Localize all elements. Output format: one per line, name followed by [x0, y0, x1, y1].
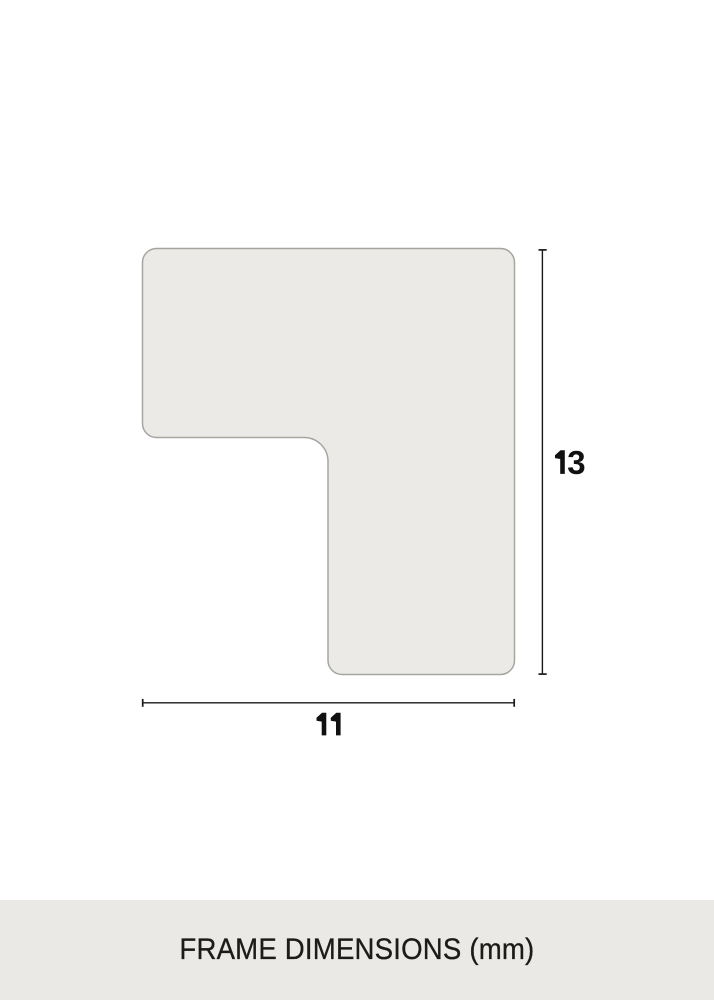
svg-text:3: 3 — [567, 444, 585, 481]
